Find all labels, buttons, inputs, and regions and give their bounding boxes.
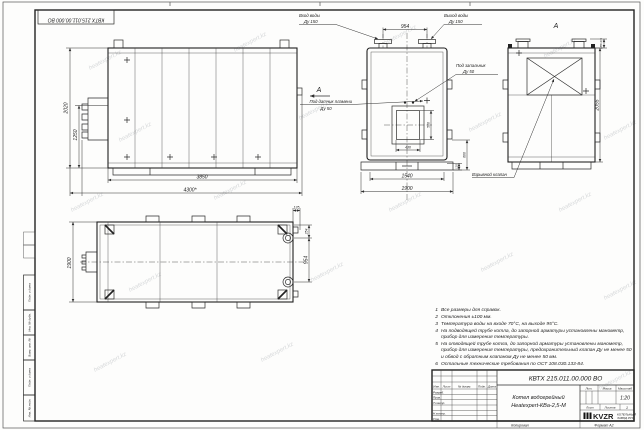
svg-text:Ду 150: Ду 150 bbox=[303, 19, 318, 24]
note-item: 6Остальные технические требования по ОСТ… bbox=[433, 362, 633, 368]
dim-side-top: 185±0,5 bbox=[599, 38, 603, 49]
row-utv: Утв. bbox=[433, 417, 440, 421]
watermark-text: heatexpert.kz bbox=[310, 262, 345, 284]
bottom-margin: Копировал Формат А2 bbox=[497, 421, 614, 428]
side-top-pipes bbox=[508, 39, 595, 48]
svg-text:Выход воды: Выход воды bbox=[444, 13, 469, 18]
rotated-designation-stamp: КВТХ 215.011.00.000 ВО bbox=[38, 10, 114, 24]
watermark-text: heatexpert.kz bbox=[468, 112, 503, 134]
scale-value: 1:20 bbox=[620, 396, 630, 402]
front-cross-marks bbox=[124, 57, 261, 160]
company-line-2: ЗАВОД.РУС bbox=[617, 416, 635, 420]
mass-label: Масса bbox=[603, 387, 612, 391]
front-vent-left bbox=[114, 40, 123, 48]
igniter-label: Под запальник Ду 50 bbox=[415, 63, 499, 102]
col-izm: Изм. bbox=[433, 385, 440, 389]
view-a-arrow: А bbox=[310, 87, 330, 96]
row-razrab: Разраб. bbox=[433, 390, 444, 394]
flame-sensor-port-cross bbox=[424, 98, 430, 104]
svg-text:Под запальник: Под запальник bbox=[456, 63, 487, 68]
front-side-stub bbox=[297, 88, 302, 95]
dim-front-height-inner: 1250 bbox=[73, 129, 79, 140]
note-item: 2Отклонения ±100 мм. bbox=[433, 315, 633, 321]
watermark-text: heatexpert.kz bbox=[480, 252, 515, 274]
explosion-valve-label: Взрывной клапан bbox=[472, 79, 554, 178]
side-panel-seams bbox=[508, 95, 595, 162]
view-a-label: А bbox=[553, 23, 559, 30]
side-view-a: А Взрывной клапан 185±0,5 bbox=[472, 23, 607, 178]
side-base bbox=[512, 162, 591, 169]
margin-label: Инв. № дубл. bbox=[28, 313, 32, 332]
sheets-label: Листов bbox=[604, 406, 616, 410]
front-vent-right bbox=[280, 40, 289, 48]
watermark-text: heatexpert.kz bbox=[388, 192, 423, 214]
side-dimensions: 185±0,5 2055 bbox=[590, 38, 607, 162]
watermark-text: heatexpert.kz bbox=[93, 352, 128, 374]
dim-front-width-outer: 4300* bbox=[183, 188, 197, 194]
margin-label: Подп. и дата bbox=[28, 283, 32, 302]
note-item: 1Все размеры для справок. bbox=[433, 308, 633, 314]
watermark-text: heatexpert.kz bbox=[558, 192, 593, 214]
outlet-label: Выход воды Ду 150 bbox=[431, 13, 482, 39]
dim-plan-offset: 135 bbox=[294, 206, 300, 210]
svg-text:Ду 50: Ду 50 bbox=[319, 106, 332, 111]
dim-section-width: 1900 bbox=[401, 186, 412, 192]
dim-opening-height: 560 bbox=[427, 122, 431, 128]
company-logo: KVZR bbox=[584, 412, 615, 421]
front-burner-bracket bbox=[82, 98, 108, 140]
dim-section-right-mid: 600 bbox=[463, 152, 467, 158]
inlet-label: Вход воды Ду 150 bbox=[299, 13, 378, 39]
watermark-text: heatexpert.kz bbox=[128, 272, 163, 294]
stamp-doc-number: КВТХ 215.011.00.000 ВО bbox=[48, 17, 105, 23]
svg-text:Ду 150: Ду 150 bbox=[448, 19, 463, 24]
row-tkontr: Т.контр. bbox=[433, 401, 445, 405]
row-prov: Пров. bbox=[433, 396, 441, 400]
drawing-sheet: heatexpert.kz heatexpert.kz heatexpert.k… bbox=[0, 0, 644, 430]
product-name-1: Котел водогрейный bbox=[512, 394, 564, 401]
lit-label: Лит. bbox=[584, 387, 592, 391]
svg-text:Ду 50: Ду 50 bbox=[462, 69, 475, 74]
col-podp: Подп. bbox=[478, 385, 486, 389]
dim-section-base: 1540 bbox=[401, 174, 412, 180]
explosion-valve-panel bbox=[527, 58, 582, 95]
watermark-text: heatexpert.kz bbox=[213, 180, 248, 202]
dim-opening-width: 480 bbox=[405, 146, 411, 150]
front-panel-seams bbox=[135, 48, 270, 168]
watermark-text: heatexpert.kz bbox=[70, 192, 105, 214]
watermark-text: heatexpert.kz bbox=[603, 120, 638, 142]
title-block: Изм. Лист № докум. Подп. Дата Разраб. Пр… bbox=[432, 370, 637, 421]
format-label: Формат А2 bbox=[594, 424, 613, 428]
plan-dimensions: 1900 135 254 954 bbox=[67, 206, 312, 303]
dim-pipe-spacing: 954 bbox=[401, 24, 410, 30]
technical-notes: 1Все размеры для справок. 2Отклонения ±1… bbox=[433, 308, 633, 368]
sheets-value: 1 bbox=[626, 406, 628, 410]
note-item: 3Температура воды на входе 70°С, на выхо… bbox=[433, 322, 633, 328]
svg-text:Взрывной клапан: Взрывной клапан bbox=[472, 172, 508, 177]
dim-front-height-outer: 2020 bbox=[64, 102, 70, 114]
margin-label: Взам. инв. № bbox=[28, 337, 32, 356]
dim-plan-pipes: 954 bbox=[304, 256, 310, 265]
section-view: Вход воды Ду 150 Выход воды Ду 150 Под з… bbox=[299, 13, 498, 200]
dim-front-width-inner: 3850 bbox=[196, 175, 207, 181]
sheet-label: Лист bbox=[585, 406, 594, 410]
plan-pipe-flanges bbox=[283, 233, 293, 287]
section-dimensions: 954 480 560 1540 1900 135 600 bbox=[361, 24, 470, 194]
col-data: Дата bbox=[487, 385, 496, 389]
svg-text:Под датчик пламени: Под датчик пламени bbox=[309, 99, 352, 104]
doc-number: КВТХ 215.011.00.000 ВО bbox=[529, 376, 603, 383]
col-list: Лист bbox=[442, 385, 451, 389]
scale-label: Масштаб bbox=[618, 387, 632, 391]
watermark-text: heatexpert.kz bbox=[118, 122, 153, 144]
watermark-text: heatexpert.kz bbox=[603, 280, 638, 302]
left-margin-cells: Подп. и дата Инв. № дубл. Взам. инв. № П… bbox=[24, 232, 36, 421]
margin-label: Инв. № подл. bbox=[28, 399, 32, 418]
title-left-table: Изм. Лист № докум. Подп. Дата Разраб. Пр… bbox=[432, 370, 497, 421]
front-dimensions: 2020 1250 3850 4300* bbox=[64, 48, 303, 196]
watermark-text: heatexpert.kz bbox=[260, 342, 295, 364]
col-docnum: № докум. bbox=[458, 385, 471, 389]
dim-plan-width: 1900 bbox=[67, 257, 73, 268]
dim-side-height: 2055 bbox=[595, 99, 601, 111]
dim-section-right-small: 135 bbox=[455, 164, 459, 169]
plan-view: 1900 135 254 954 bbox=[67, 206, 312, 309]
dim-plan-edge: 254 bbox=[305, 229, 309, 236]
logo-text: KVZR bbox=[593, 412, 614, 421]
frame-fold-marks bbox=[170, 2, 470, 6]
watermark-text: heatexpert.kz bbox=[233, 32, 268, 54]
watermark-text: heatexpert.kz bbox=[543, 38, 578, 60]
note-item: 5На отводящей трубе котла, до запорной а… bbox=[433, 342, 633, 361]
svg-text:А: А bbox=[316, 87, 322, 94]
note-item: 4На подводящей трубе котла, до запорной … bbox=[433, 329, 633, 342]
title-right-section: Лит. Масса Масштаб 1:20 Лист Листов 1 KV… bbox=[580, 385, 637, 421]
front-body bbox=[108, 48, 297, 168]
burner-opening bbox=[392, 98, 430, 145]
product-name-2: Heatexpert-КВа-2,5-М bbox=[511, 403, 566, 409]
row-nkontr: Н.контр. bbox=[433, 412, 446, 416]
margin-label: Подп. и дата bbox=[28, 368, 32, 387]
svg-text:Вход воды: Вход воды bbox=[299, 13, 321, 18]
front-rim-lines bbox=[108, 53, 297, 163]
copied-label: Копировал bbox=[511, 424, 528, 428]
